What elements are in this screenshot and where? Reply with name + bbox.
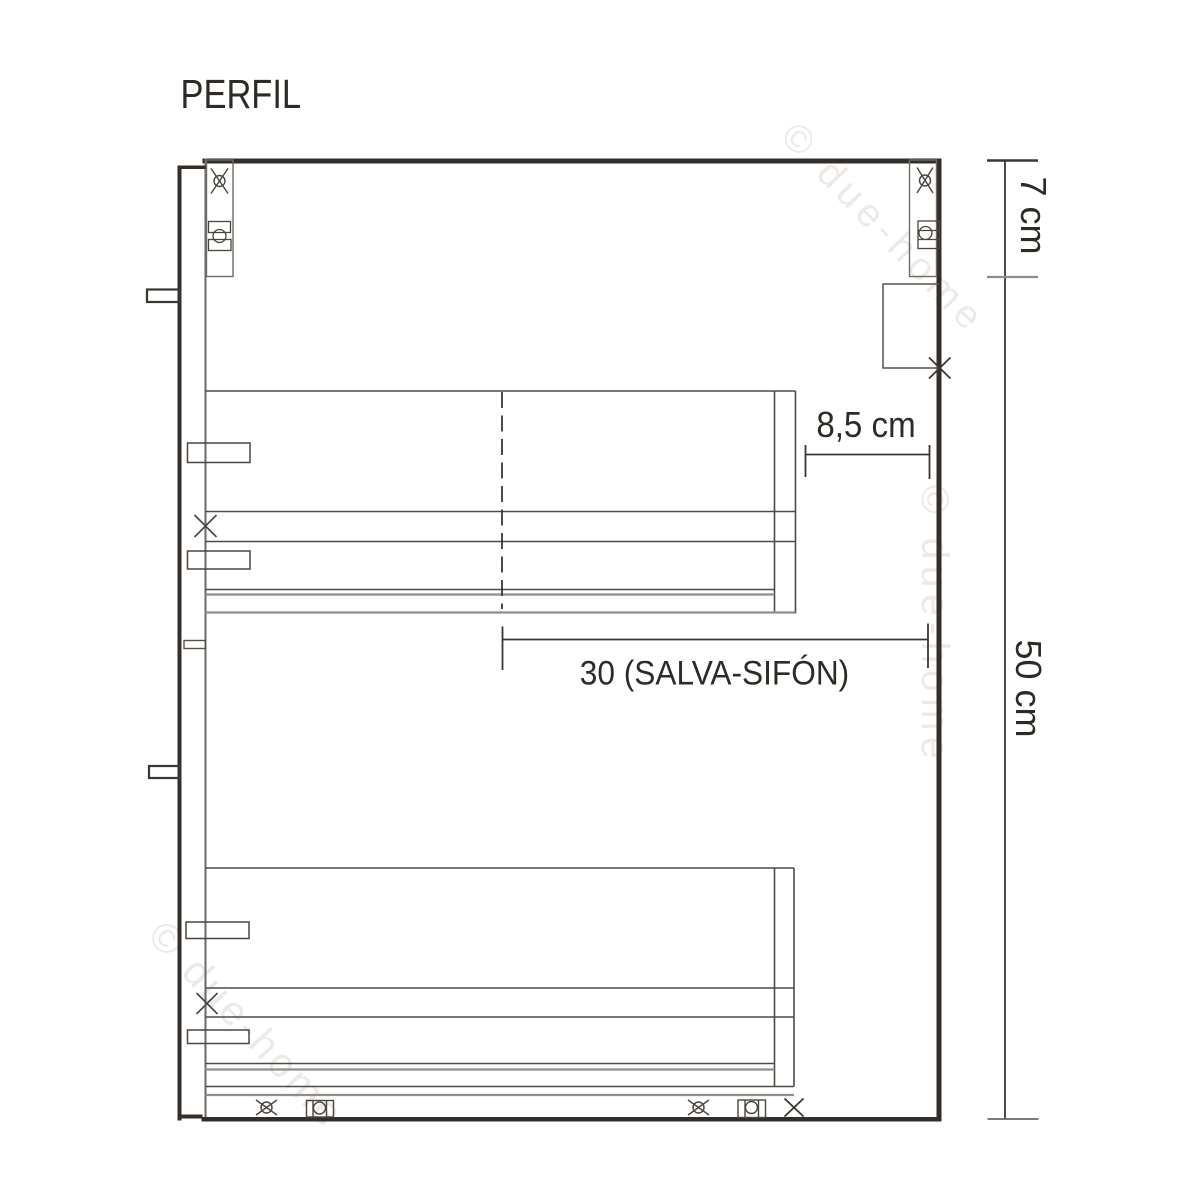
svg-text:© due-home: © due-home [139,912,354,1138]
svg-text:© due-home: © due-home [913,485,956,765]
svg-text:50 cm: 50 cm [1008,639,1049,737]
svg-text:30 (SALVA-SIFÓN): 30 (SALVA-SIFÓN) [580,653,849,691]
svg-text:PERFIL: PERFIL [181,72,302,117]
svg-text:8,5 cm: 8,5 cm [816,406,915,446]
svg-text:7 cm: 7 cm [1013,176,1054,254]
